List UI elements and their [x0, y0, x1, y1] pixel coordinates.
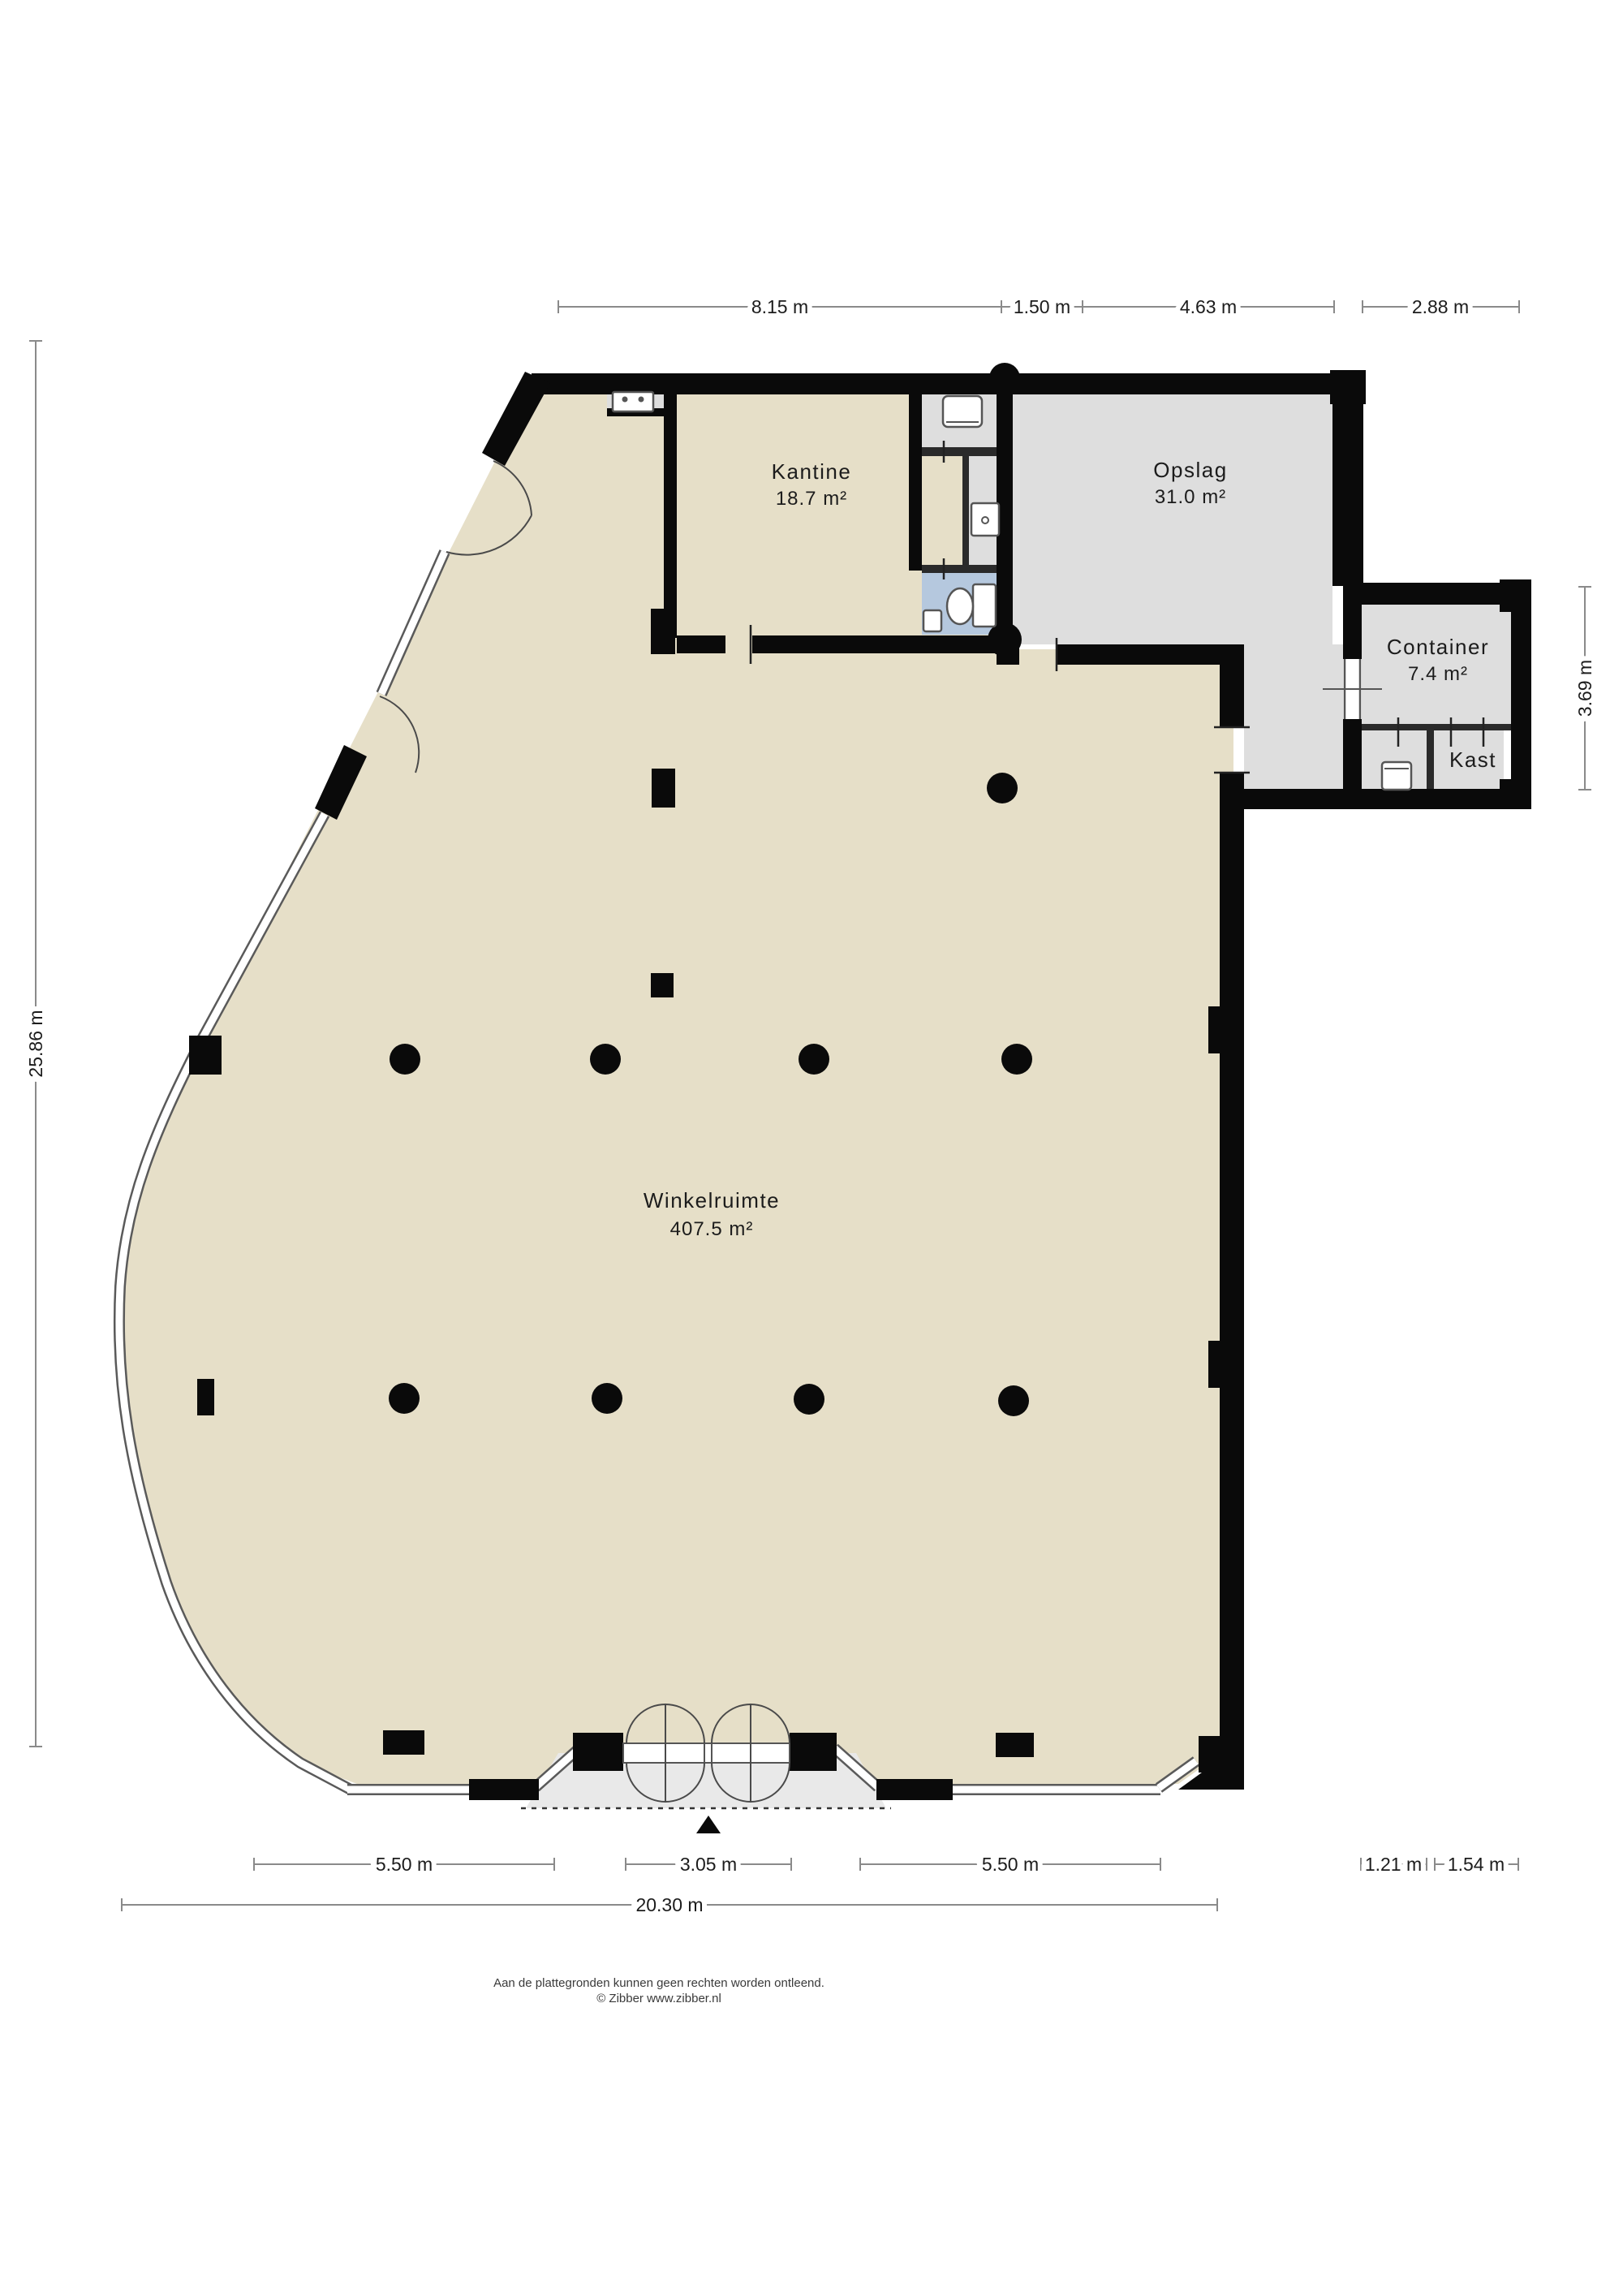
- label-opslag-area: 31.0 m²: [1155, 486, 1226, 508]
- dim-bottom-1: 5.50 m: [376, 1854, 433, 1875]
- dim-bottom-4: 1.21 m: [1365, 1854, 1422, 1875]
- toilet-sink-icon: [923, 610, 941, 631]
- boiler-icon: [1382, 762, 1411, 790]
- label-kantine-area: 18.7 m²: [776, 488, 847, 510]
- label-container: Container: [1387, 635, 1489, 659]
- label-winkelruimte: Winkelruimte: [644, 1188, 780, 1213]
- footer-copyright: © Zibber www.zibber.nl: [596, 1992, 721, 2005]
- label-container-area: 7.4 m²: [1408, 663, 1468, 685]
- label-kast: Kast: [1449, 747, 1496, 772]
- label-kantine: Kantine: [772, 459, 852, 484]
- dim-total-width: 20.30 m: [635, 1894, 703, 1915]
- dim-top-3: 4.63 m: [1180, 296, 1237, 317]
- room-opslag-floor: [1006, 381, 1332, 644]
- dim-right: 3.69 m: [1574, 660, 1595, 717]
- dim-bottom-2: 3.05 m: [680, 1854, 737, 1875]
- floorplan-drawing: Kantine 18.7 m² Opslag 31.0 m² Container…: [0, 0, 1623, 2296]
- sink-counter-icon: [613, 392, 653, 411]
- corridor-floor: [1244, 644, 1343, 791]
- label-winkelruimte-area: 407.5 m²: [670, 1218, 754, 1240]
- dim-bottom-5: 1.54 m: [1448, 1854, 1505, 1875]
- entrance-arrow: [696, 1816, 721, 1833]
- dim-top-2: 1.50 m: [1014, 296, 1070, 317]
- dim-left: 25.86 m: [25, 1010, 46, 1077]
- dim-top-1: 8.15 m: [751, 296, 808, 317]
- dim-top-4: 2.88 m: [1412, 296, 1469, 317]
- dim-bottom-3: 5.50 m: [982, 1854, 1039, 1875]
- label-opslag: Opslag: [1153, 458, 1227, 482]
- toilet-bowl-icon: [947, 588, 973, 624]
- floorplan-page: Kantine 18.7 m² Opslag 31.0 m² Container…: [0, 0, 1623, 2296]
- footer-disclaimer: Aan de plattegronden kunnen geen rechten…: [493, 1976, 824, 1990]
- small-sink-icon: [971, 503, 999, 536]
- toilet-tank-icon: [973, 584, 996, 627]
